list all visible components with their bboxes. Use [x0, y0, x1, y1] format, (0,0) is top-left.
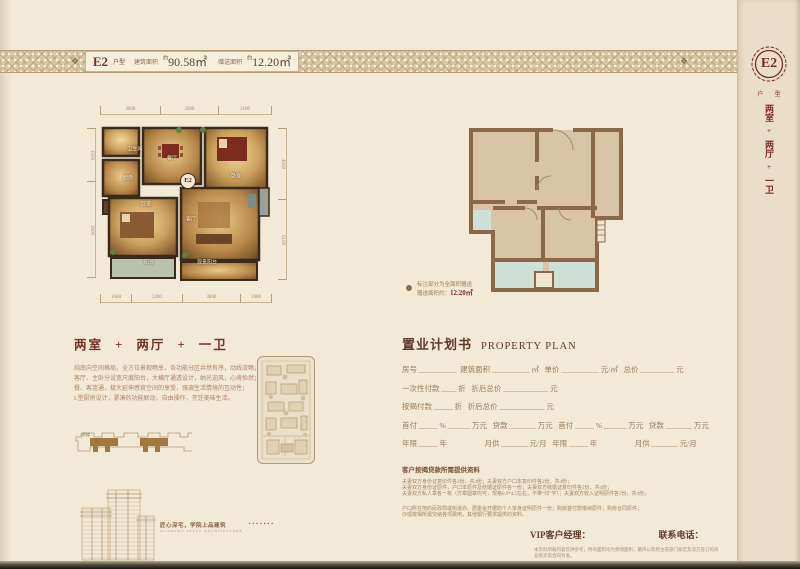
property-plan-title: 置业计划书 PROPERTY PLAN: [402, 334, 732, 353]
form-row: 房号 __________ 建筑面积 __________ ㎡ 单价 _____…: [402, 364, 732, 383]
siteplan-drawing: [261, 360, 311, 460]
room-label: 卧室: [141, 201, 151, 208]
note-line2-value: 12.20㎡: [450, 289, 473, 297]
note-line2-label: 赠送面积约：: [417, 291, 450, 297]
brochure-page: ❖ ❖ E2户型 建筑面积 约90.58㎡ 赠送面积 约12.20㎡ E2 户 …: [0, 0, 800, 569]
floorplate-diagram: [74, 429, 192, 459]
note-bullet-icon: [406, 285, 412, 291]
description-line: L型厨房设计，紧凑的功能联动，自由操作，烹饪美味生活。: [74, 394, 264, 404]
form-row: 年限 _____ 年 月供 _______ 元/月 年限 _____ 年 月供 …: [402, 438, 732, 457]
dim-label: 3600: [100, 106, 160, 115]
dims-bottom: 1600320038001600: [100, 294, 272, 303]
seal-unit-code: E2: [747, 42, 791, 86]
dim-label: 3100: [218, 106, 272, 115]
gift-area-note: 标注部分为全面积赠送 赠送面积约：12.20㎡: [406, 281, 473, 299]
layout-char: 一卫: [763, 176, 776, 194]
dim-label: 4500: [278, 128, 287, 199]
plan-title-en: PROPERTY PLAN: [481, 341, 577, 352]
unit-seal: E2: [747, 42, 791, 91]
room-label: 厨房: [123, 175, 133, 182]
docs-lines2: 户口所在地的民政局或街道办、居委会开据的个人单身证明原件一份；购房首付款缴纳原件…: [402, 507, 732, 519]
description-line: 餐、客连通，极大延伸感官空间的享受，强调生活情境的互动性；: [74, 384, 264, 394]
caption-en: ACADEMY STYLE ARCHITECTURE: [160, 529, 243, 533]
docs-line: 夫妻双方私人章各一枚（方章圆章均可，规格0.9*4.5左右，不带“印”字）；夫妻…: [402, 492, 732, 498]
form-row: 首付 _____ % ______ 万元 贷款 _______ 万元 首付 __…: [402, 420, 732, 439]
form-row: 按揭付款 _____ 折 折后总价 ____________ 元: [402, 401, 732, 420]
layout-vertical-text: 两室+两厅+一卫: [760, 102, 778, 196]
area2-value: 12.20㎡: [252, 55, 291, 69]
area1-value: 90.58㎡: [168, 55, 207, 69]
caption-cn: 匠心深宅，学院上品建筑: [160, 521, 243, 529]
area1-label: 建筑面积: [134, 57, 158, 66]
building-caption: 匠心深宅，学院上品建筑 ACADEMY STYLE ARCHITECTURE ▪…: [160, 521, 275, 533]
dim-label: 1600: [100, 294, 131, 303]
unit-suffix: 户型: [113, 57, 125, 66]
siteplan-thumbnail: [257, 356, 315, 464]
note-line1: 标注部分为全面积赠送: [417, 281, 473, 289]
dim-label: 3800: [182, 294, 240, 303]
building-elevation: [70, 484, 160, 564]
sidebar-unit-tab: E2 户 型 两室+两厅+一卫: [737, 0, 800, 569]
dim-label: 3000: [87, 181, 96, 278]
docs-line: 办理按揭所需交纳各项费用，其他银行要求提供的资料。: [402, 513, 732, 519]
page-bottom-edge: [0, 561, 800, 569]
layout-char: +: [765, 127, 773, 135]
layout-heading: 两室 + 两厅 + 一卫: [74, 334, 228, 353]
dims-top: 360035003100: [100, 106, 272, 115]
room-label: 卧室: [231, 173, 241, 180]
floorplate-label: 1号楼: [80, 432, 90, 438]
caption-stamps: ▪▪▪▪▪▪▪: [249, 522, 275, 527]
seal-subtitle: 户 型: [738, 89, 800, 98]
dims-right: 45005100: [278, 128, 287, 280]
band-ornament-left-icon: ❖: [71, 56, 79, 66]
dim-label: 3500: [160, 106, 218, 115]
layout-char: 两室: [763, 104, 776, 122]
phone-label: 联系电话：: [659, 528, 704, 541]
room-label: 卫生间: [127, 146, 142, 153]
property-plan-section: 置业计划书 PROPERTY PLAN 房号 __________ 建筑面积 _…: [402, 334, 732, 559]
vip-contact-row: VIP客户经理： 联系电话：: [530, 528, 732, 541]
detailed-floorplan: [100, 124, 272, 284]
form-row: 一次性付款 ____ 折 折后总价 ____________ 元: [402, 383, 732, 402]
layout-char: 两厅: [763, 140, 776, 158]
description-line: 客厅、主卧分设宽尺度阳台，大横厅通透设计，纳光迎风，心境怡然；: [74, 374, 264, 384]
dims-left: 15003000: [87, 128, 96, 278]
vip-manager-label: VIP客户经理：: [530, 528, 591, 541]
docs-lines: 夫妻双方身份证复印件各2份，共4份；夫妻双方户口本复印件各2份，共4份；夫妻双方…: [402, 480, 732, 499]
room-label: 阳台: [144, 259, 154, 266]
plan-form-rows: 房号 __________ 建筑面积 __________ ㎡ 单价 _____…: [402, 364, 732, 457]
dim-label: 5100: [278, 199, 287, 280]
header-title-box: E2户型 建筑面积 约90.58㎡ 赠送面积 约12.20㎡: [85, 51, 299, 72]
layout-char: +: [765, 163, 773, 171]
area2-label: 赠送面积: [218, 57, 242, 66]
page-right-shadow: [794, 0, 800, 569]
outline-floorplan: [465, 120, 627, 300]
floorplan-unit-badge: E2: [180, 173, 196, 189]
room-label: 客厅: [186, 216, 196, 223]
room-label: 观景阳台: [197, 259, 217, 266]
fine-print: 本资料所载内容仅供参考，所有面积均为预测面积，最终以政府主管部门核定及双方签订的…: [534, 547, 719, 559]
dim-label: 1500: [87, 128, 96, 181]
docs-title: 客户按揭贷款所需提供资料: [402, 464, 732, 474]
room-label: 餐厅: [167, 155, 177, 162]
page-left-shadow: [0, 0, 12, 569]
unit-code: E2: [93, 54, 108, 70]
description-paragraph: 纯南向空间格局，全方位景观畅享，各功能分区井然有序，动线流畅；客厅、主卧分设宽尺…: [74, 364, 264, 404]
dim-label: 3200: [131, 294, 182, 303]
dim-label: 1600: [240, 294, 272, 303]
plan-title-cn: 置业计划书: [402, 334, 472, 353]
description-line: 纯南向空间格局，全方位景观畅享，各功能分区井然有序，动线流畅；: [74, 364, 264, 374]
band-ornament-right-icon: ❖: [680, 56, 688, 66]
